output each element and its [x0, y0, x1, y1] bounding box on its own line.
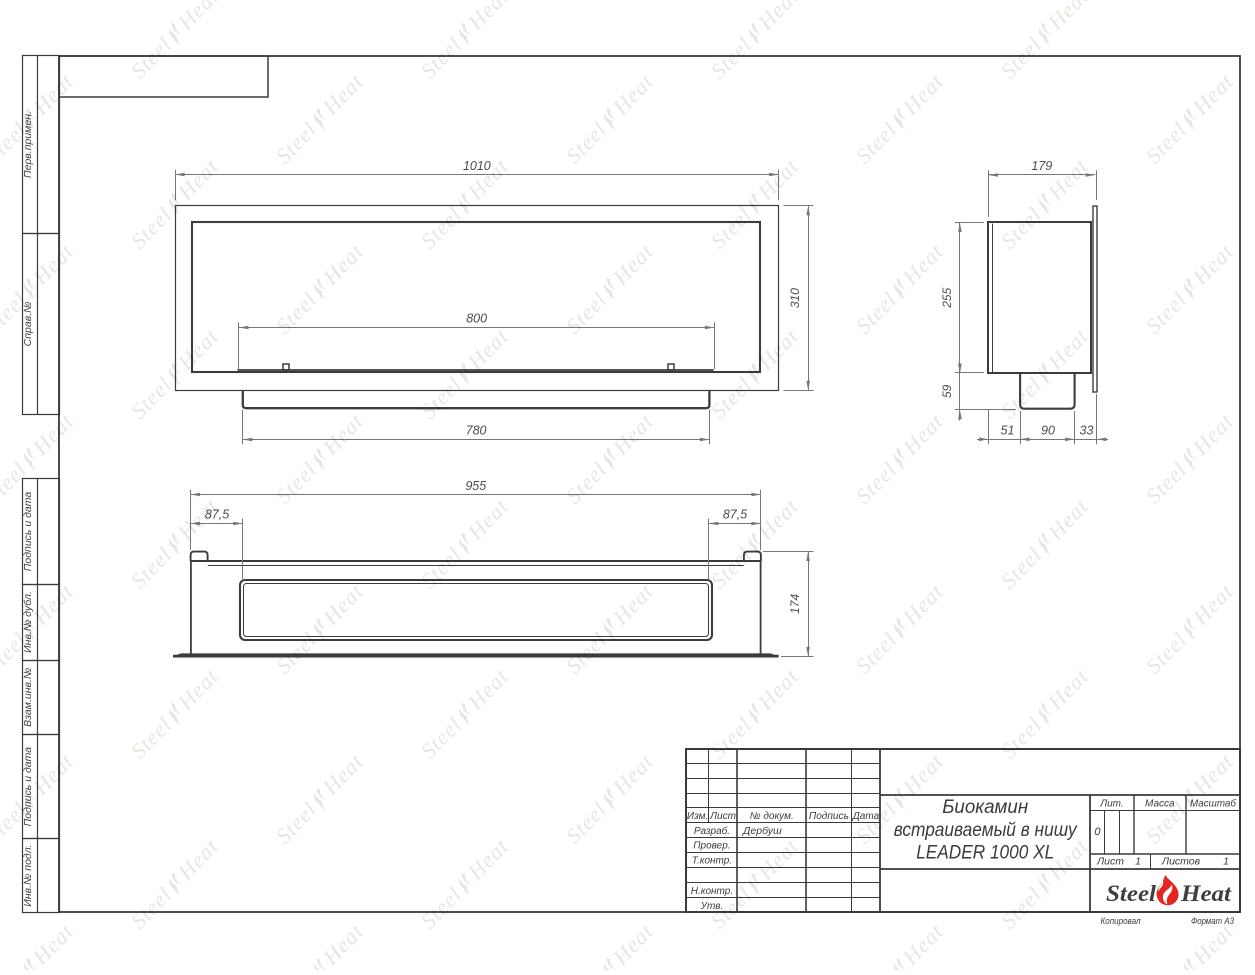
svg-text:Heat: Heat [1180, 881, 1232, 906]
svg-text:Т.контр.: Т.контр. [692, 856, 732, 867]
svg-text:90: 90 [1041, 424, 1055, 438]
svg-text:255: 255 [940, 287, 954, 308]
svg-text:800: 800 [466, 311, 487, 325]
svg-text:LEADER 1000 XL: LEADER 1000 XL [916, 843, 1054, 864]
svg-text:174: 174 [788, 594, 802, 614]
svg-text:Инв.№ подл.: Инв.№ подл. [22, 844, 34, 906]
svg-text:встраиваемый в нишу: встраиваемый в нишу [894, 820, 1078, 841]
svg-text:Провер.: Провер. [693, 841, 730, 852]
svg-text:33: 33 [1080, 424, 1094, 438]
svg-text:780: 780 [466, 424, 487, 438]
svg-text:179: 179 [1031, 159, 1052, 173]
svg-text:Взам.инв.№: Взам.инв.№ [22, 668, 34, 727]
svg-text:Листов: Листов [1161, 856, 1201, 868]
svg-text:310: 310 [788, 288, 802, 308]
svg-text:Лит.: Лит. [1099, 798, 1123, 809]
svg-text:Лист: Лист [709, 811, 736, 822]
svg-text:51: 51 [1001, 424, 1015, 438]
svg-text:1: 1 [1223, 856, 1229, 868]
svg-text:Биокамин: Биокамин [942, 797, 1029, 818]
svg-text:955: 955 [465, 479, 486, 493]
svg-text:Изм.: Изм. [687, 811, 708, 822]
svg-text:87,5: 87,5 [723, 507, 747, 521]
svg-text:Подпись: Подпись [809, 811, 849, 822]
svg-text:Лист: Лист [1096, 856, 1124, 868]
svg-text:Копировал: Копировал [1101, 916, 1142, 927]
svg-text:0: 0 [1094, 826, 1101, 838]
svg-text:Дербуш: Дербуш [742, 825, 782, 837]
svg-text:Разраб.: Разраб. [694, 825, 730, 837]
svg-text:№ докум.: № докум. [750, 811, 794, 822]
svg-text:59: 59 [940, 384, 954, 398]
svg-text:Steel: Steel [1106, 881, 1157, 906]
svg-text:Масштаб: Масштаб [1190, 797, 1236, 809]
svg-text:Подпись и дата: Подпись и дата [22, 492, 34, 572]
svg-text:1: 1 [1135, 856, 1141, 868]
